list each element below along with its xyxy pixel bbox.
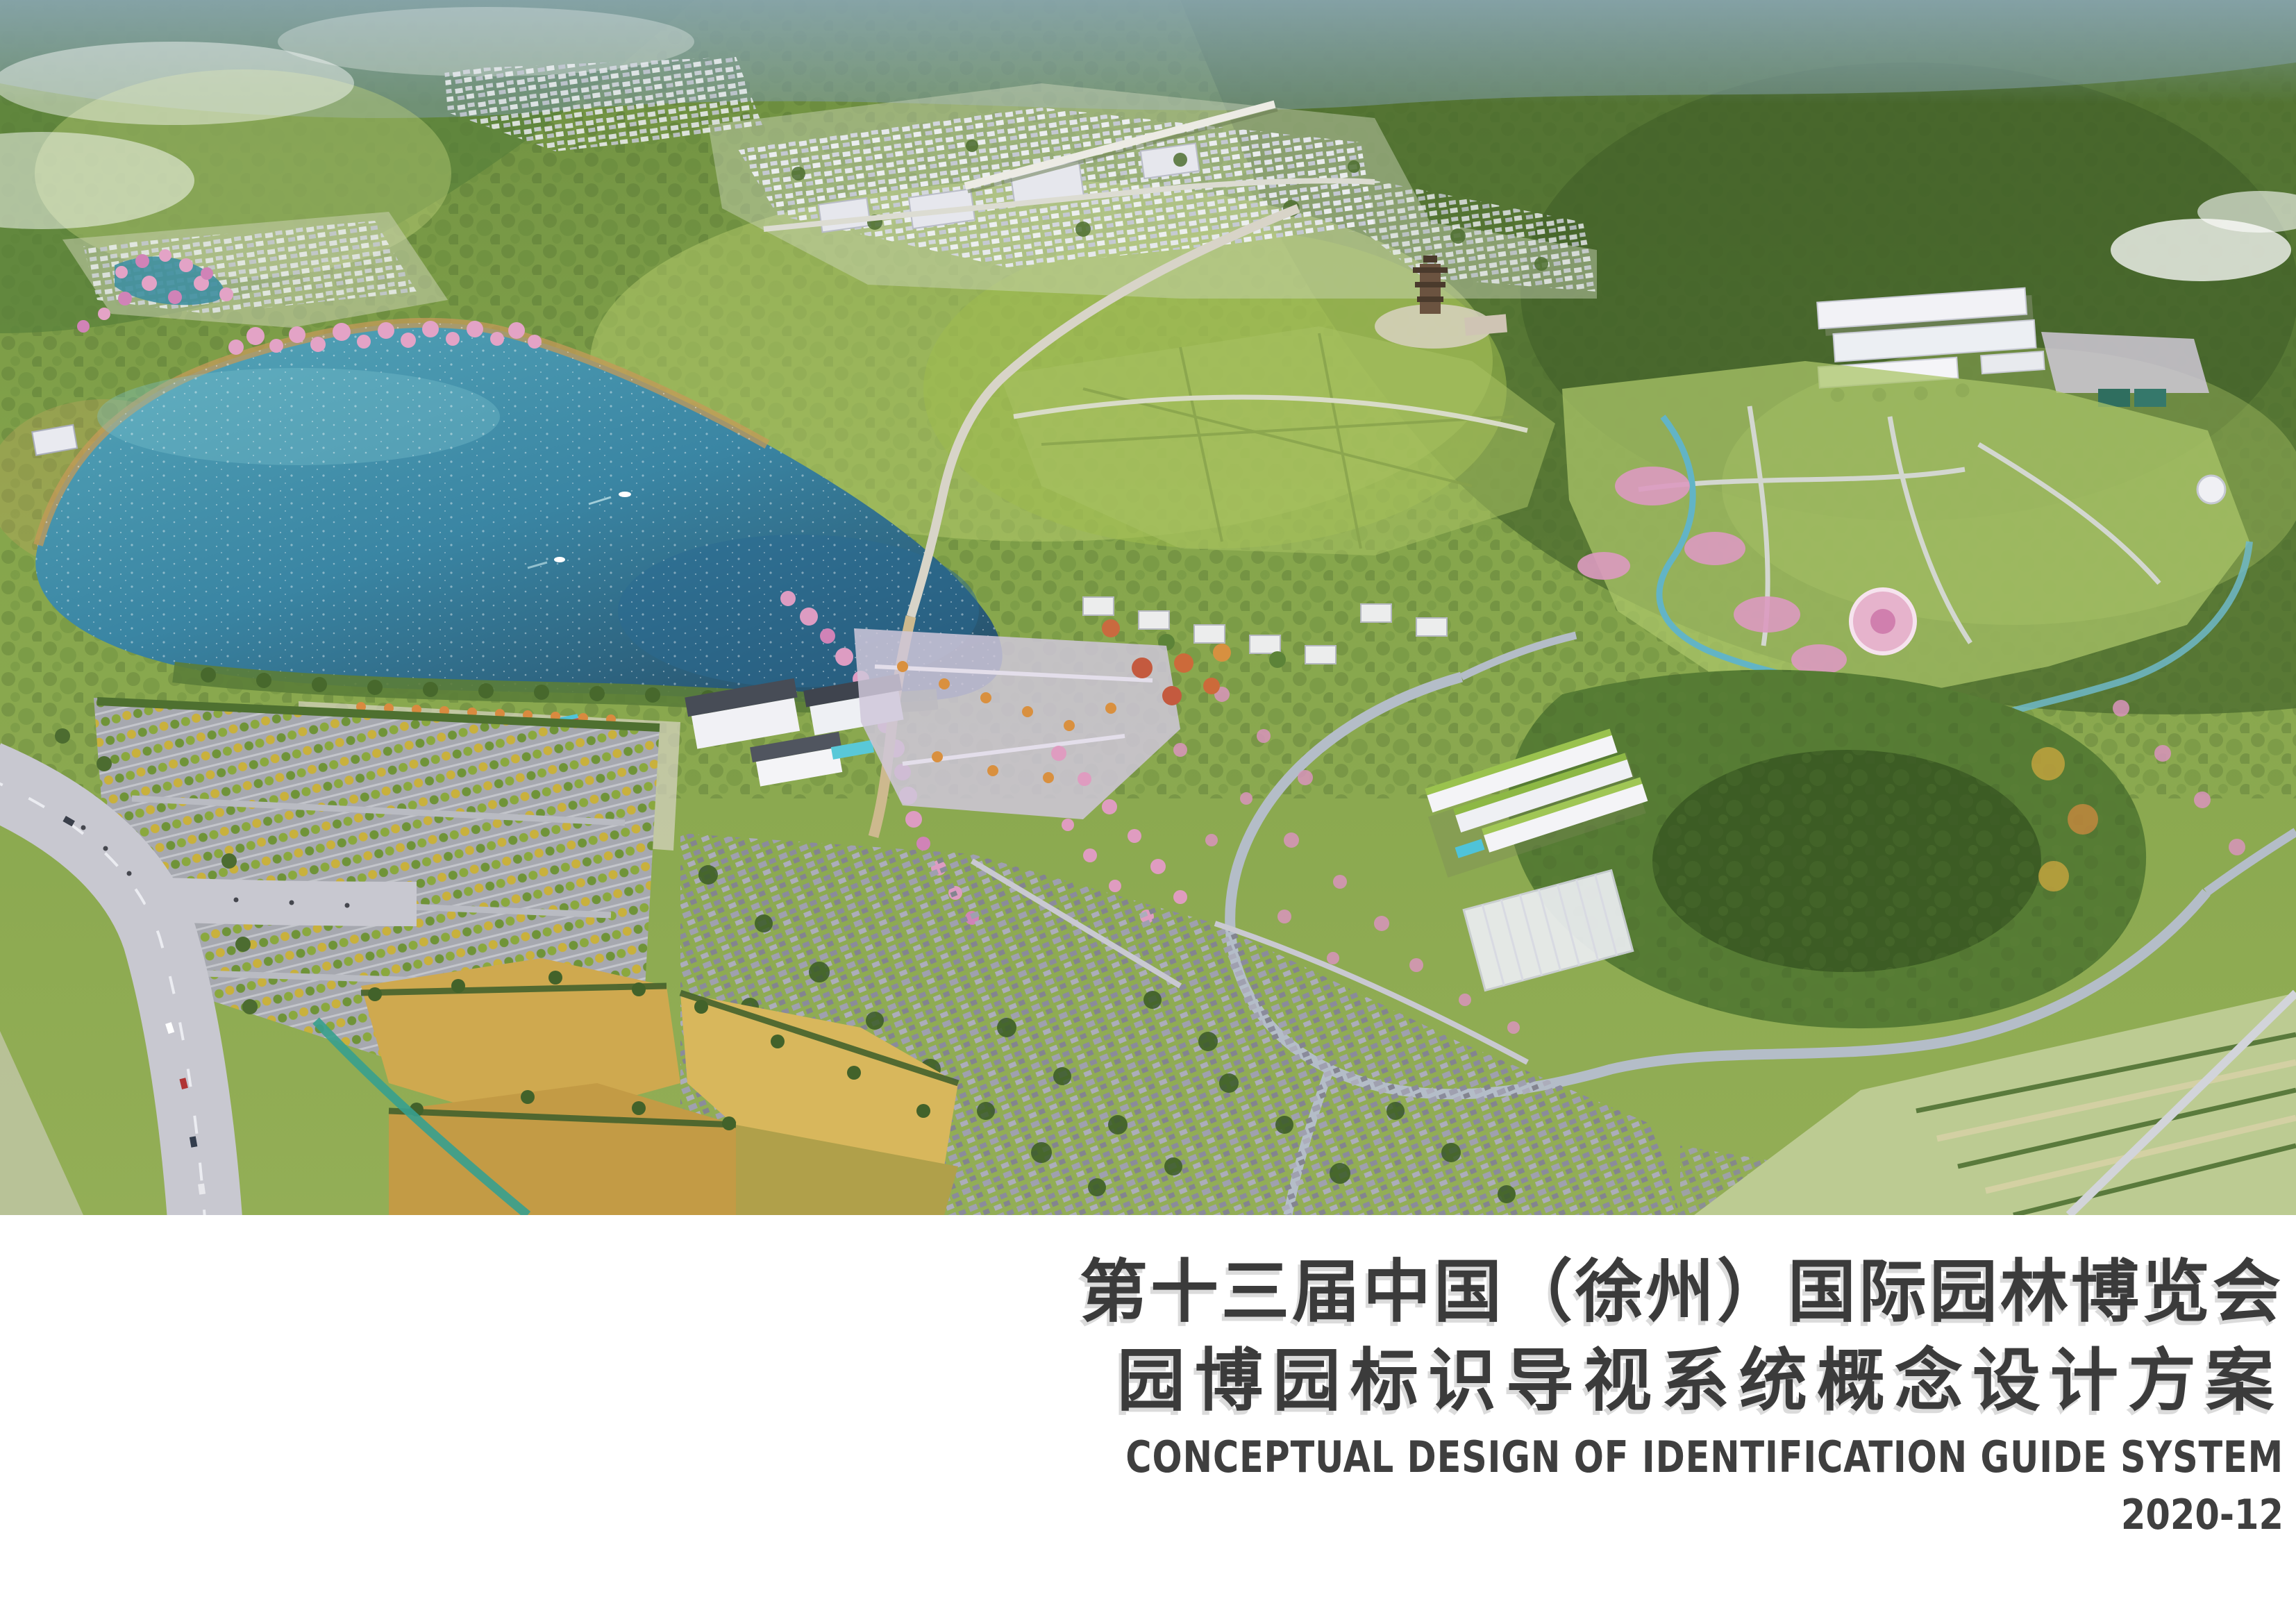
white-pavilion xyxy=(2197,476,2225,503)
subtitle-en: CONCEPTUAL DESIGN OF IDENTIFICATION GUID… xyxy=(411,1436,2284,1479)
sports-court xyxy=(2134,389,2166,407)
cover-page: { "page": {"width": 3307, "height": 2339… xyxy=(0,0,2296,1624)
aerial-rendering xyxy=(0,0,2296,1215)
title-line1-zh: 第十三届中国（徐州）国际园林博览会 xyxy=(0,1258,2284,1326)
title-line2-zh: 园博园标识导视系统概念设计方案 xyxy=(0,1347,2284,1415)
entrance-approach xyxy=(146,899,417,904)
date-label: 2020-12 xyxy=(342,1494,2284,1536)
title-block: 第十三届中国（徐州）国际园林博览会 园博园标识导视系统概念设计方案 CONCEP… xyxy=(0,1215,2296,1624)
